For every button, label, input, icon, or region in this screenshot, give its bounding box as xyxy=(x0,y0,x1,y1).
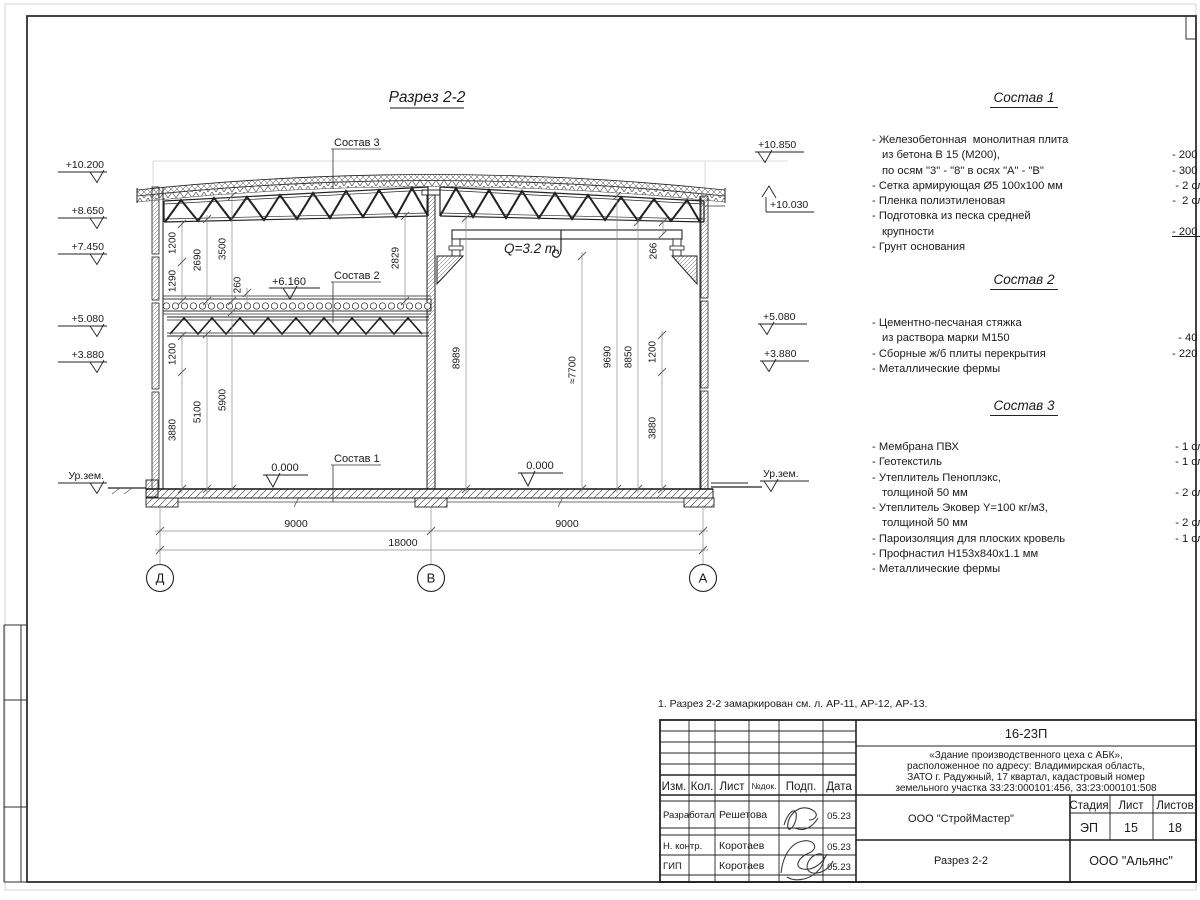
svg-text:1200: 1200 xyxy=(168,342,179,365)
svg-text:Дата: Дата xyxy=(826,781,852,793)
svg-text:8989: 8989 xyxy=(452,346,463,369)
svg-text:≈7700: ≈7700 xyxy=(568,356,579,384)
crane-capacity-label: Q=3.2 т xyxy=(504,241,556,256)
list-item: - Мембрана ПВХ- 1 слой xyxy=(872,440,1200,455)
title-block-headers: Изм. Кол. Лист №док. Подп. Дата xyxy=(662,781,853,793)
svg-text:18000: 18000 xyxy=(388,537,417,549)
section-title: Разрез 2-2 xyxy=(389,89,466,106)
svg-text:05.23: 05.23 xyxy=(827,811,851,822)
svg-text:+10.850: +10.850 xyxy=(758,139,796,151)
list-item: - Металлические фермы xyxy=(872,562,1200,577)
label-sostav-2: Состав 2 xyxy=(334,270,380,282)
level-zero-right: 0.000 xyxy=(518,460,563,486)
svg-text:Решетова: Решетова xyxy=(719,809,767,821)
svg-text:0.000: 0.000 xyxy=(526,460,554,472)
contractor-company: ООО "Альянс" xyxy=(1089,854,1173,868)
signature-scribbles xyxy=(781,808,833,880)
left-wall xyxy=(146,187,163,497)
signature-korotaev xyxy=(781,841,833,880)
svg-text:3500: 3500 xyxy=(218,237,229,260)
composition-3-heading: Состав 3 xyxy=(852,398,1196,416)
ground-level-label-right: Ур.зем. xyxy=(763,468,799,480)
sheet-note: 1. Разрез 2-2 замаркирован см. л. АР-11,… xyxy=(658,698,927,710)
svg-text:№док.: №док. xyxy=(752,781,777,791)
svg-text:расположенное по адресу: Влади: расположенное по адресу: Владимирская об… xyxy=(907,760,1145,772)
ground-level-label-left: Ур.зем. xyxy=(68,470,104,482)
horizontal-dimensions: 9000 9000 18000 xyxy=(155,505,708,564)
list-item: - Утеплитель Эковер Y=100 кг/м3, xyxy=(872,501,1200,516)
svg-text:9000: 9000 xyxy=(555,518,579,530)
project-description: «Здание производственного цеха с АБК», р… xyxy=(895,750,1157,794)
list-item: из раствора марки М150- 40 мм xyxy=(872,331,1200,346)
svg-text:+7.450: +7.450 xyxy=(72,241,105,253)
svg-text:2829: 2829 xyxy=(391,246,402,269)
svg-text:Н. контр.: Н. контр. xyxy=(663,841,702,852)
list-item: по осям "3" - "8" в осях "А" - "В"- 300 … xyxy=(872,164,1200,179)
drawing-sheet: Разрез 2-2 xyxy=(0,0,1200,900)
composition-3: Состав 3 xyxy=(852,398,1196,416)
svg-text:05.23: 05.23 xyxy=(827,862,851,873)
composition-2: Состав 2 xyxy=(852,272,1196,290)
axis-label-v: В xyxy=(427,571,436,586)
svg-text:+3.880: +3.880 xyxy=(72,349,105,361)
composition-3-items: - Мембрана ПВХ- 1 слой - Геотекстиль- 1 … xyxy=(852,440,1200,578)
svg-text:0.000: 0.000 xyxy=(271,462,299,474)
svg-text:+10.200: +10.200 xyxy=(66,159,104,171)
list-item: - Металлические фермы xyxy=(872,362,1200,377)
document-code: 16-23П xyxy=(1005,726,1048,741)
svg-text:5900: 5900 xyxy=(218,388,229,411)
svg-text:Изм.: Изм. xyxy=(662,781,687,793)
svg-text:05.23: 05.23 xyxy=(827,842,851,853)
list-item: - Утеплитель Пеноплэкс, xyxy=(872,471,1200,486)
list-item: - Сборные ж/б плиты перекрытия- 220 мм xyxy=(872,347,1200,362)
svg-text:Лист: Лист xyxy=(1119,800,1145,812)
list-item: - Железобетонная монолитная плита xyxy=(872,133,1200,148)
svg-text:260: 260 xyxy=(233,276,244,293)
svg-text:Коротаев: Коротаев xyxy=(719,840,765,852)
axis-label-a: А xyxy=(699,571,708,586)
svg-text:266: 266 xyxy=(649,242,660,259)
list-item: - Грунт основания xyxy=(872,240,1200,255)
sheet-number: 15 xyxy=(1124,821,1138,835)
elevation-marks-left: +10.200 +8.650 +7.450 +5.080 +3.880 Ур.з… xyxy=(58,159,107,494)
label-sostav-3: Состав 3 xyxy=(334,137,380,149)
svg-text:Кол.: Кол. xyxy=(691,781,714,793)
level-zero-left: 0.000 xyxy=(263,462,308,487)
list-item: - Сетка армирующая Ø5 100х100 мм- 2 слоя xyxy=(872,179,1200,194)
svg-text:Лист: Лист xyxy=(720,781,746,793)
composition-1: Состав 1 xyxy=(852,90,1196,108)
svg-text:Подп.: Подп. xyxy=(786,781,817,793)
svg-text:ЗАТО г. Радужный, 17 квартал,: ЗАТО г. Радужный, 17 квартал, кадастровы… xyxy=(907,772,1145,783)
list-item: - Пленка полиэтиленовая- 2 слоя xyxy=(872,194,1200,209)
composition-1-heading: Состав 1 xyxy=(852,90,1196,108)
svg-text:ГИП: ГИП xyxy=(663,861,682,872)
svg-text:8850: 8850 xyxy=(624,345,635,368)
sheets-total: 18 xyxy=(1168,821,1182,835)
svg-text:Разработал: Разработал xyxy=(663,810,715,821)
svg-text:+3.880: +3.880 xyxy=(764,348,797,360)
svg-text:2690: 2690 xyxy=(193,248,204,271)
list-item: - Цементно-песчаная стяжка xyxy=(872,316,1200,331)
list-item: из бетона В 15 (М200),- 200 мм xyxy=(872,148,1200,163)
svg-text:Стадия: Стадия xyxy=(1069,800,1108,812)
list-item: - Профнастил Н153х840х1.1 мм xyxy=(872,547,1200,562)
axis-bubbles: Д В А xyxy=(147,565,717,592)
list-item: - Геотекстиль- 1 слой xyxy=(872,455,1200,470)
svg-text:+5.080: +5.080 xyxy=(72,313,105,325)
svg-text:«Здание производственного цеха: «Здание производственного цеха с АБК», xyxy=(929,750,1123,761)
svg-text:1200: 1200 xyxy=(648,340,659,363)
level-6160: +6.160 xyxy=(269,276,320,299)
svg-text:Коротаев: Коротаев xyxy=(719,860,765,872)
axis-label-d: Д xyxy=(156,571,165,586)
mezzanine-truss xyxy=(167,317,429,336)
elevation-marks-right: +10.850 +10.030 +5.080 +3.880 Ур.зем. xyxy=(755,139,814,492)
composition-2-heading: Состав 2 xyxy=(852,272,1196,290)
drawing-name: Разрез 2-2 xyxy=(934,855,988,867)
list-item: толщиной 50 мм- 2 слоя xyxy=(872,486,1200,501)
designer-company: ООО "СтройМастер" xyxy=(908,813,1014,825)
page-title: Разрез 2-2 xyxy=(389,89,466,108)
left-attribute-column xyxy=(4,625,27,882)
corner-code-box xyxy=(1186,16,1196,39)
svg-text:1200: 1200 xyxy=(168,231,179,254)
list-item: крупности- 200 мм xyxy=(872,225,1200,240)
svg-text:+8.650: +8.650 xyxy=(72,205,105,217)
svg-text:9690: 9690 xyxy=(603,345,614,368)
svg-text:3880: 3880 xyxy=(168,418,179,441)
svg-text:+6.160: +6.160 xyxy=(272,276,306,288)
list-item: - Пароизоляция для плоских кровель- 1 сл… xyxy=(872,532,1200,547)
svg-text:9000: 9000 xyxy=(284,518,308,530)
svg-text:Листов: Листов xyxy=(1156,800,1193,812)
list-item: толщиной 50 мм- 2 слоя xyxy=(872,516,1200,531)
svg-text:1290: 1290 xyxy=(168,269,179,292)
stage-value: ЭП xyxy=(1080,821,1098,835)
middle-column xyxy=(422,190,440,489)
composition-2-items: - Цементно-песчаная стяжка из раствора м… xyxy=(852,316,1200,377)
signature-reshetova xyxy=(784,808,818,830)
svg-text:+10.030: +10.030 xyxy=(770,199,808,211)
right-wall xyxy=(700,196,708,489)
title-block: Изм. Кол. Лист №док. Подп. Дата Разработ… xyxy=(660,720,1196,882)
svg-text:земельного участка 33:23:00010: земельного участка 33:23:000101:456, 33:… xyxy=(895,783,1157,794)
label-sostav-1: Состав 1 xyxy=(334,453,380,465)
list-item: - Подготовка из песка средней xyxy=(872,209,1200,224)
composition-1-items: - Железобетонная монолитная плита из бет… xyxy=(852,133,1200,255)
svg-text:+5.080: +5.080 xyxy=(763,311,796,323)
svg-text:5100: 5100 xyxy=(193,400,204,423)
svg-text:3880: 3880 xyxy=(648,416,659,439)
